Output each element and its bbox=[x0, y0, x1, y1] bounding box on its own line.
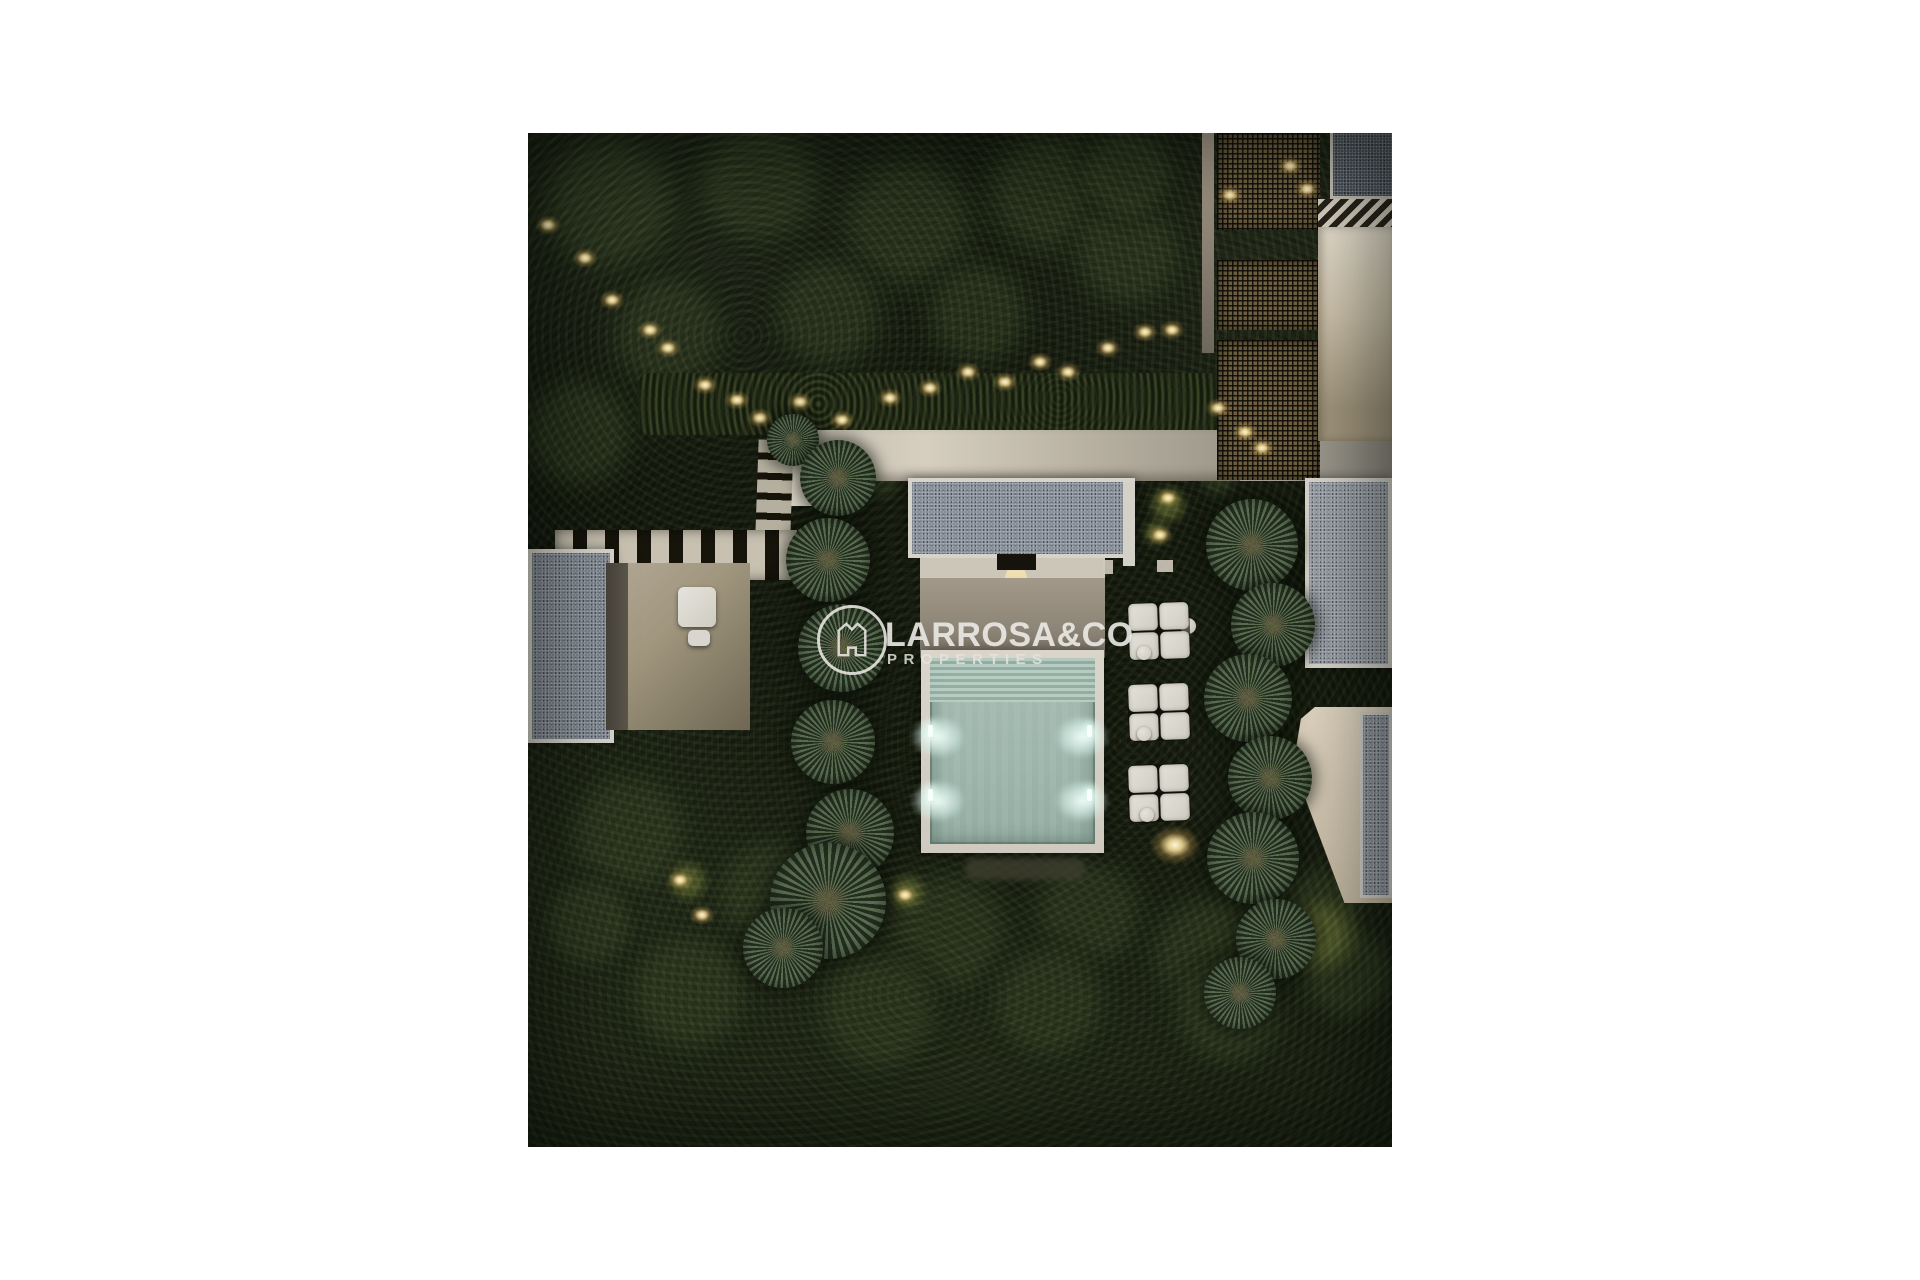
brand-tagline: PROPERTIES bbox=[887, 651, 1049, 668]
palm-tree bbox=[786, 518, 870, 602]
property-aerial-photo: LARROSA&CO PROPERTIES bbox=[528, 133, 1392, 1147]
logo-house-icon bbox=[817, 605, 887, 675]
palm-tree bbox=[791, 700, 875, 784]
palm-tree bbox=[1207, 812, 1299, 904]
page-background: LARROSA&CO PROPERTIES bbox=[0, 0, 1920, 1280]
brand-name: LARROSA&CO bbox=[885, 616, 1134, 655]
palm-tree bbox=[743, 908, 823, 988]
palm-tree bbox=[1204, 957, 1276, 1029]
palm-tree bbox=[1204, 654, 1292, 742]
palm-tree bbox=[1228, 736, 1312, 820]
palm-tree bbox=[800, 440, 876, 516]
house-crown-glyph bbox=[833, 619, 871, 661]
palm-tree bbox=[1206, 499, 1298, 591]
